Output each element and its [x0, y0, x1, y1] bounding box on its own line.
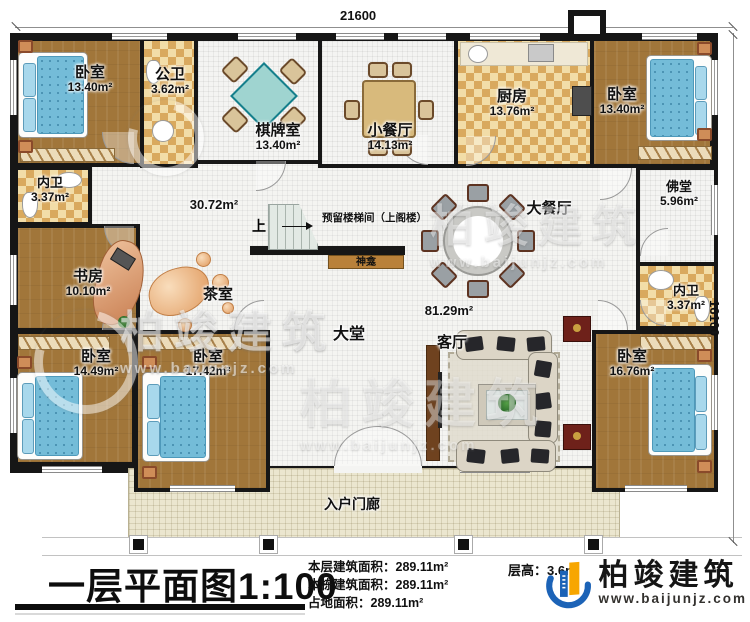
sofa-cushion [534, 420, 551, 437]
sofa-cushion [534, 392, 552, 410]
label-living-room: 客厅 [437, 334, 467, 351]
stat-row: 占地面积：289.11m² [308, 594, 448, 612]
label-buddha-hall: 佛堂5.96m² [660, 180, 698, 209]
chair [467, 280, 489, 298]
window [711, 375, 718, 430]
window [238, 33, 296, 40]
label-bedroom-bl: 卧室14.49m² [74, 348, 119, 379]
dimension-right-value: 16100 [707, 300, 722, 336]
label-open-area-2: 81.29m² [425, 304, 473, 319]
chimney-flue [568, 10, 606, 40]
tea-stone [222, 302, 234, 314]
window [711, 185, 718, 235]
plant [498, 394, 516, 412]
bed-mattress [35, 376, 79, 456]
plan-title: 一层平面图1:100 [48, 556, 338, 610]
porch-step-line [42, 537, 742, 538]
chair [467, 184, 489, 202]
label-small-dining: 小餐厅14.13m² [367, 122, 412, 153]
brand-name: 柏竣建筑 [598, 561, 747, 591]
nightstand [697, 128, 712, 141]
brand-logo: 柏竣建筑 www.baijunjz.com [543, 550, 747, 616]
window [10, 255, 17, 305]
nightstand [697, 42, 712, 55]
window [170, 485, 235, 492]
bed-mattress [160, 376, 206, 458]
bed-pillow [23, 98, 36, 132]
sofa-cushion [464, 336, 484, 352]
bed-pillow [695, 66, 707, 100]
label-chess-room: 棋牌室13.40m² [255, 122, 300, 153]
tv [438, 372, 442, 428]
bed-mattress [652, 368, 695, 452]
bed-pillow [695, 376, 707, 412]
sofa-cushion [466, 448, 486, 464]
chair [392, 62, 412, 78]
stair-arrow-head [306, 222, 313, 230]
nightstand [18, 40, 33, 53]
stair-direction-arrow [282, 226, 308, 227]
bed [648, 364, 712, 456]
chair [421, 230, 439, 252]
sofa-cushion [534, 360, 553, 379]
window [470, 33, 540, 40]
label-porch: 入户门廊 [324, 496, 380, 512]
sofa-cushion [500, 448, 519, 464]
sofa-cushion [496, 336, 515, 352]
floorplan-page: 21600 16100 上 预留楼梯间（上阁楼） 神龛 [0, 0, 750, 622]
sofa-cushion [531, 448, 550, 463]
window [336, 33, 384, 40]
shrine-shelf: 神龛 [328, 255, 404, 269]
bed-pillow [23, 63, 36, 97]
bed [142, 372, 210, 462]
window [398, 33, 446, 40]
nightstand [142, 466, 157, 479]
stat-row: 本层建筑面积：289.11m² [308, 558, 448, 576]
label-inner-bath-left: 内卫3.37m² [31, 176, 69, 205]
sofa-cushion [526, 336, 545, 352]
cabinet-knob [573, 432, 581, 440]
area-stats: 本层建筑面积：289.11m² 本栋建筑面积：289.11m² 占地面积：289… [308, 558, 448, 612]
label-tea-room: 茶室 [203, 286, 233, 303]
label-main-hall: 大堂 [333, 326, 365, 344]
brand-logo-text: 柏竣建筑 www.baijunjz.com [598, 561, 747, 606]
window [112, 33, 167, 40]
stat-row: 本栋建筑面积：289.11m² [308, 576, 448, 594]
label-bedroom-tl: 卧室13.40m² [68, 64, 113, 95]
porch-column [260, 536, 277, 553]
chair [344, 100, 360, 120]
chair [517, 230, 535, 252]
kitchen-sink [468, 45, 488, 63]
tea-stone [178, 318, 192, 332]
brand-url: www.baijunjz.com [598, 591, 747, 606]
porch-column [455, 536, 472, 553]
nightstand [142, 356, 157, 369]
dimension-line-top [15, 27, 733, 28]
stair-note: 预留楼梯间（上阁楼） [322, 210, 427, 225]
chair [418, 100, 434, 120]
bed-pillow [22, 419, 34, 454]
dimension-top-value: 21600 [340, 8, 376, 23]
window [642, 33, 697, 40]
bed-pillow [22, 383, 34, 418]
label-inner-bath-right: 内卫3.37m² [667, 284, 705, 313]
window [42, 466, 102, 473]
stair-up-label: 上 [252, 216, 266, 236]
bed [17, 372, 83, 460]
bed-pillow [147, 421, 160, 456]
label-open-area-1: 30.72m² [190, 198, 238, 213]
cabinet-knob [573, 324, 581, 332]
nightstand [17, 356, 32, 369]
label-big-dining: 大餐厅 [526, 200, 571, 217]
window [10, 60, 17, 115]
brand-logo-icon [543, 552, 592, 614]
porch-column [130, 536, 147, 553]
bed-mattress [650, 59, 694, 137]
nightstand [697, 349, 712, 362]
title-underline-light [15, 613, 305, 615]
label-bedroom-bm: 卧室17.42m² [186, 348, 231, 379]
title-underline [15, 604, 305, 610]
nightstand [18, 140, 33, 153]
bed-pillow [147, 384, 160, 419]
label-kitchen: 厨房13.76m² [490, 88, 535, 119]
label-public-bath: 公卫3.62m² [151, 66, 189, 97]
desk-plant [118, 316, 130, 328]
sofa [456, 440, 556, 472]
lazy-susan [453, 216, 503, 266]
chair [368, 62, 388, 78]
wardrobe [638, 146, 712, 160]
room-public-bath [140, 37, 198, 168]
wardrobe [20, 148, 115, 162]
window [10, 378, 17, 433]
dimension-line-right [733, 33, 734, 543]
bed-pillow [695, 414, 707, 450]
label-bedroom-br: 卧室16.76m² [610, 348, 655, 379]
kitchen-stove-top [528, 44, 554, 62]
label-study: 书房10.10m² [66, 268, 111, 299]
window [711, 60, 718, 115]
label-bedroom-tr: 卧室13.40m² [600, 86, 645, 117]
tea-stone [196, 252, 211, 267]
window [625, 485, 687, 492]
sink [152, 120, 174, 142]
nightstand [697, 460, 712, 473]
kitchen-range [572, 86, 592, 116]
